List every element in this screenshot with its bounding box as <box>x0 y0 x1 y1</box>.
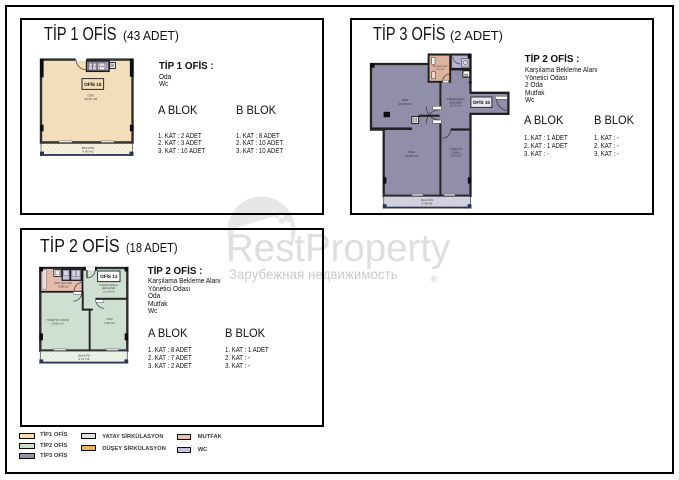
svg-text:8.08 m2: 8.08 m2 <box>58 284 69 288</box>
svg-text:22.07 m2: 22.07 m2 <box>450 105 462 108</box>
svg-text:14.96 m2: 14.96 m2 <box>450 155 462 158</box>
svg-text:6.79 m2: 6.79 m2 <box>436 68 445 71</box>
svg-text:9.48 m2: 9.48 m2 <box>422 202 433 206</box>
svg-text:9.51 m2: 9.51 m2 <box>79 357 90 361</box>
svg-text:OFİS 16: OFİS 16 <box>473 100 491 105</box>
svg-text:9.40 m2: 9.40 m2 <box>82 150 93 154</box>
svg-text:11.78 m2: 11.78 m2 <box>103 290 115 294</box>
svg-text:40.92 m2: 40.92 m2 <box>84 97 97 101</box>
svg-text:24.88 m2: 24.88 m2 <box>405 154 418 158</box>
svg-text:OFİS 13: OFİS 13 <box>100 273 118 279</box>
svg-text:OFİS 18: OFİS 18 <box>84 81 102 87</box>
svg-text:24.29 m2: 24.29 m2 <box>399 102 412 106</box>
svg-text:14.85 m2: 14.85 m2 <box>51 322 63 326</box>
svg-text:9.85 m2: 9.85 m2 <box>104 321 115 325</box>
